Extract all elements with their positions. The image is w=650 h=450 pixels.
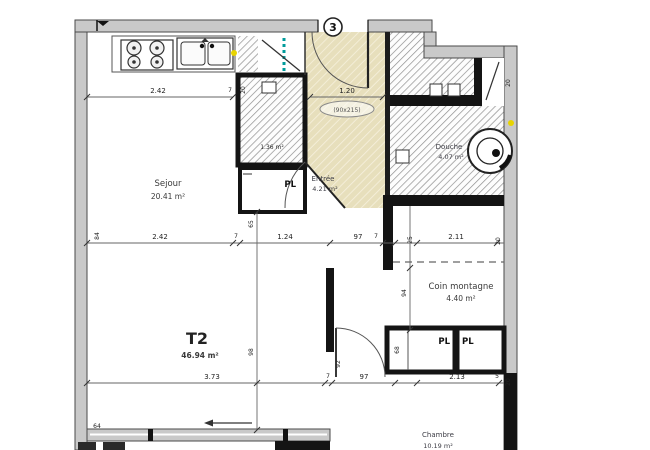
- wall-pier: [275, 441, 330, 450]
- dim-vert-94: 94: [401, 289, 408, 297]
- dim-vert-98: 98: [248, 348, 255, 356]
- sill-block: [78, 442, 96, 450]
- door-size-text: (90x215): [333, 107, 360, 114]
- closet-label-pl3: PL: [462, 337, 474, 347]
- dim-vert-20: 20: [505, 79, 512, 87]
- dim-mid-97: 97: [354, 233, 363, 241]
- dim-mid-211: 2.11: [448, 233, 464, 241]
- closet-label-pl1: PL: [284, 180, 296, 190]
- valve-dot-icon: [508, 120, 514, 126]
- room-area-chambre: 10.19 m²: [423, 442, 453, 450]
- fixture-box: [448, 84, 460, 96]
- wc-niche: [482, 58, 504, 106]
- dim-64: 64: [93, 423, 101, 430]
- dim-vert-65: 65: [248, 220, 255, 228]
- dim-mid-7a: 7: [234, 233, 238, 240]
- dim-bot-373: 3.73: [204, 373, 220, 381]
- dim-mid-20: 20: [495, 237, 502, 245]
- dim-bot-5: 5: [495, 373, 499, 380]
- stove-icon: [121, 40, 173, 70]
- dim-bot-97: 97: [360, 373, 369, 381]
- slide-arrow-head: [204, 420, 213, 427]
- window-mullion: [283, 429, 288, 441]
- window-bay-details: [78, 420, 330, 450]
- room-area-coin-montagne: 4.40 m²: [446, 294, 475, 303]
- outer-wall-top-mid: [368, 20, 432, 32]
- lot-number-badge: 3: [324, 18, 342, 36]
- fixture-box: [396, 150, 409, 163]
- dim-vert-92: 92: [335, 360, 342, 368]
- dim-bot-7: 7: [326, 373, 330, 380]
- wc-room-hatch: [390, 32, 424, 95]
- dim-mid-25: 25: [407, 236, 414, 244]
- closet-door-line: [262, 40, 300, 71]
- floor-plan-canvas: 3 1.20 (90x215) Sejour 20.41 m² Entrée 4…: [0, 0, 650, 450]
- dim-mid-7b: 7: [374, 233, 378, 240]
- closet-label-pl2: PL: [438, 337, 450, 347]
- floor-plan-drawing: 3 1.20 (90x215) Sejour 20.41 m² Entrée 4…: [0, 0, 650, 450]
- dim-top-7: 7: [228, 87, 232, 94]
- dim-bot-213: 2.13: [449, 373, 465, 381]
- fixture-box: [430, 84, 442, 96]
- outer-wall-top-left: [75, 20, 318, 32]
- duct-box: [262, 82, 276, 93]
- unit-area: 46.94 m²: [181, 351, 218, 360]
- duct-area-label: 1.36 m²: [260, 144, 284, 151]
- outer-wall-top-right: [424, 46, 517, 58]
- pl3-walls: [457, 328, 504, 372]
- dim-top-242: 2.42: [150, 87, 166, 95]
- pl-closet-walls: [240, 168, 305, 212]
- shower-icon: [468, 129, 512, 173]
- dim-mid-124: 1.24: [277, 233, 293, 241]
- douche-south-wall: [390, 195, 504, 206]
- door-width-label: 1.20: [339, 87, 355, 95]
- dim-vert-68: 68: [394, 346, 401, 354]
- dim-vert-84: 84: [94, 232, 101, 240]
- room-label-coin-montagne: Coin montagne: [428, 282, 493, 292]
- dim-bot-20: 20: [505, 378, 512, 386]
- tap-dot-icon: [231, 50, 237, 56]
- sill-block: [103, 442, 125, 450]
- room-area-entree: 4.21 m²: [312, 185, 338, 193]
- room-area-sejour: 20.41 m²: [151, 192, 185, 201]
- room-area-douche: 4.07 m²: [438, 153, 464, 161]
- entree-right-wall: [385, 32, 390, 195]
- room-label-entree: Entrée: [312, 175, 335, 183]
- chambre-west-wall: [326, 268, 334, 352]
- dim-mid-242: 2.42: [152, 233, 168, 241]
- room-label-sejour: Sejour: [154, 179, 182, 189]
- chambre-door-arc: [336, 328, 385, 377]
- room-label-chambre: Chambre: [422, 431, 454, 439]
- wc-side-wall: [474, 58, 482, 106]
- lot-number-text: 3: [329, 21, 337, 34]
- hall-wall: [383, 195, 393, 270]
- closet-hatch: [238, 36, 258, 72]
- unit-label: T2: [186, 329, 208, 348]
- room-label-douche: Douche: [436, 143, 463, 151]
- window-mullion: [148, 429, 153, 441]
- dim-top-20: 20: [240, 86, 247, 94]
- double-sink-icon: [177, 38, 233, 69]
